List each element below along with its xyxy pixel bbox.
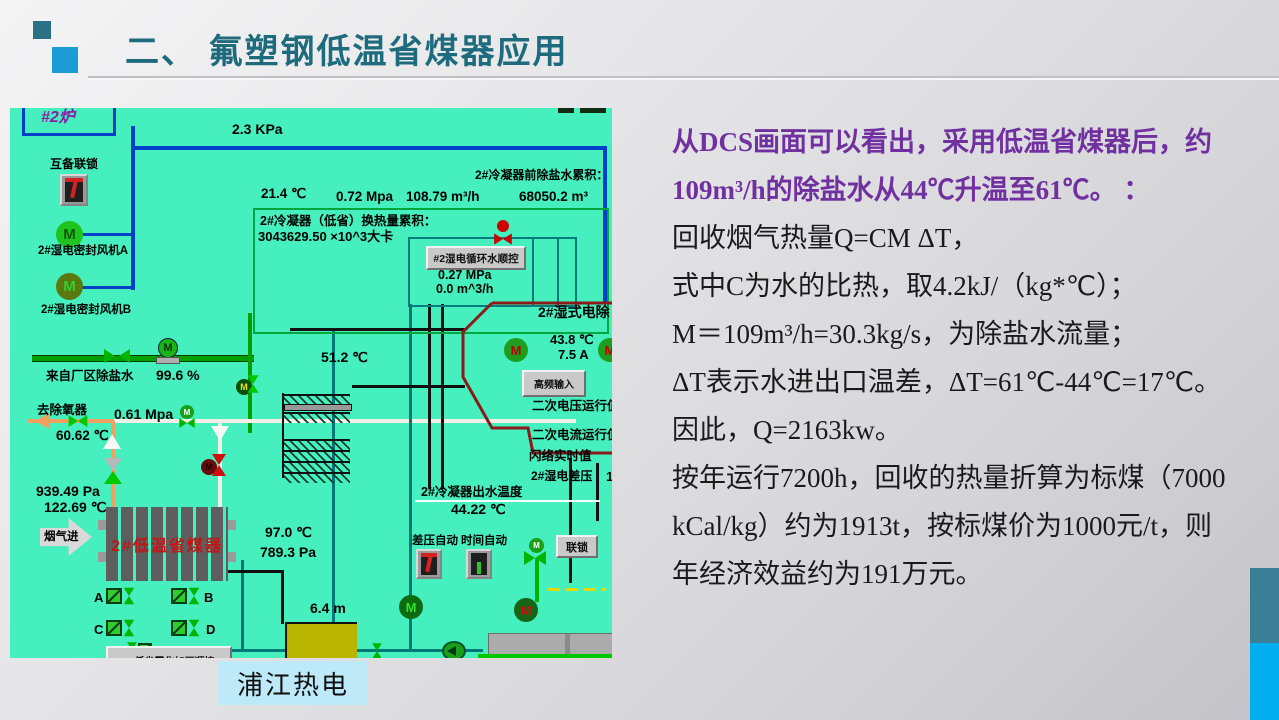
- accent-square-teal: [33, 21, 51, 39]
- hf-input-button: 高频输入: [522, 370, 586, 397]
- accum-heat-title: 2#冷凝器（低省）换热量累积：: [260, 215, 436, 229]
- sec-current-label: 二次电流运行值: [532, 429, 612, 443]
- tube-bank-row: [284, 412, 350, 423]
- body-line: kCal/kg）约为1913t，按标煤价为1000元/t，则: [672, 502, 1262, 550]
- economizer-tab: [228, 552, 236, 562]
- kpa-top-label: 2.3 KPa: [232, 122, 283, 137]
- valve-c-icon: [124, 620, 135, 637]
- dp-auto-label: 差压自动: [412, 535, 458, 548]
- body-line: 从DCS画面可以看出，采用低温省煤器后，约: [672, 118, 1262, 166]
- body-line: 回收烟气热量Q=CM ΔT，: [672, 214, 1262, 262]
- blue-pipe-vertical-left: [131, 126, 135, 290]
- header-divider: [88, 76, 1279, 80]
- bottom-motor-1-icon: M: [399, 595, 423, 619]
- teal-pipe-2: [409, 304, 412, 599]
- interlock-toggle-icon: [60, 174, 88, 206]
- dcs-screenshot: #2炉 2#低温省煤器 烟气进 M M: [10, 108, 612, 658]
- yellow-tank: [285, 622, 357, 658]
- deco-bar-blue: [1250, 643, 1279, 720]
- white-pipe-valve-icon: [179, 418, 194, 428]
- riser-valve-green-icon: [104, 471, 122, 484]
- fan-a-motor-icon: M: [56, 221, 83, 248]
- tube-bank-bar: [284, 404, 352, 411]
- white-pipe-motor-icon: M: [180, 405, 194, 419]
- caption-pujiang: 浦江热电: [218, 661, 368, 705]
- circulation-valve-icon: [494, 233, 512, 244]
- body-line: 按年运行7200h，回收的热量折算为标煤（7000: [672, 454, 1262, 502]
- percent-label: 99.6 %: [156, 368, 200, 383]
- black-line-h1: [226, 570, 284, 573]
- demin-inlet-valve-icon: [104, 349, 130, 365]
- dp-label: 2#湿电差压: [531, 470, 592, 483]
- esp-motor-1-icon: M: [504, 338, 528, 362]
- circulation-divider: [532, 239, 534, 305]
- valve-c-label: C: [94, 623, 103, 637]
- deco-bar-teal: [1250, 568, 1279, 643]
- flash-value-label: 闪络实时值: [529, 450, 592, 464]
- teal-stub-1: [241, 560, 244, 649]
- esp-title: 2#湿式电除: [538, 305, 610, 320]
- condenser-line-h2: [352, 385, 465, 388]
- circulation-seq-button: #2湿电循环水顺控: [426, 246, 526, 270]
- dp-digit: 1: [606, 470, 612, 484]
- valve-a-icon: [124, 588, 135, 605]
- temp-12269-label: 122.69 ℃: [44, 500, 106, 515]
- accum-heat-value: 3043629.50 ×10^3大卡: [258, 230, 393, 244]
- temp-512-label: 51.2 ℃: [321, 350, 368, 365]
- valve-d-icon: [189, 620, 200, 637]
- black-line-v1: [281, 570, 284, 624]
- valve-a-label: A: [94, 591, 103, 605]
- accent-square-blue: [52, 47, 78, 73]
- time-auto-toggle-icon: [466, 549, 492, 579]
- temp-970-label: 97.0 ℃: [265, 525, 312, 540]
- body-line: 109m³/h的除盐水从44℃升温至61℃。 ：: [672, 166, 1262, 214]
- page-title: 二、 氟塑钢低温省煤器应用: [125, 24, 568, 73]
- black-line-v3: [596, 463, 599, 521]
- riser-valve-gray-icon: [104, 458, 122, 471]
- body-text: 从DCS画面可以看出，采用低温省煤器后，约 109m³/h的除盐水从44℃升温至…: [672, 118, 1262, 598]
- circulation-divider: [557, 239, 559, 305]
- outlet-value: 44.22 ℃: [451, 502, 506, 517]
- sec-voltage-label: 二次电压运行值: [532, 400, 612, 414]
- mpa-inner-label: 0.27 MPa: [438, 269, 492, 283]
- economizer-block: 2#低温省煤器: [106, 507, 228, 581]
- bottom-seq-button: 2#低省雾化加压顺控: [106, 646, 232, 658]
- tube-bank-row: [284, 472, 350, 483]
- fan-b-motor-icon: M: [56, 273, 83, 300]
- economizer-tab: [98, 520, 106, 530]
- teal-stub-2: [409, 617, 412, 651]
- fan-a-label: 2#湿电密封风机A: [38, 245, 128, 258]
- clipped-text-fragment: [580, 108, 606, 113]
- outlet-label: 2#冷凝器出水温度: [421, 486, 522, 500]
- vol-top-label: 68050.2 m³: [519, 190, 588, 205]
- bottom-motor-2-icon: M: [514, 598, 538, 622]
- flue-gas-label: 烟气进: [44, 531, 79, 544]
- valve-c-square-icon: [106, 620, 122, 636]
- motor-valve-base: [156, 357, 180, 364]
- presentation-slide: 二、 氟塑钢低温省煤器应用: [0, 0, 1279, 720]
- economizer-tab: [98, 552, 106, 562]
- flow-top-label: 108.79 m³/h: [406, 190, 480, 205]
- demin-water-pipe: [32, 355, 254, 362]
- fan-a-connector: [82, 233, 132, 236]
- pa-7893-label: 789.3 Pa: [260, 545, 316, 560]
- amp-75-label: 7.5 A: [558, 348, 589, 362]
- level-64-label: 6.4 m: [310, 601, 346, 616]
- mpa-mid-label: 0.61 Mpa: [114, 407, 173, 422]
- valve-a-square-icon: [106, 588, 122, 604]
- flow-inner-label: 0.0 m^3/h: [436, 283, 493, 297]
- unit-tag: #2炉: [41, 109, 75, 127]
- valve-b-square-icon: [171, 588, 187, 604]
- from-plant-label: 来自厂区除盐水: [46, 370, 134, 384]
- valve-d-label: D: [206, 623, 215, 637]
- temp-438-label: 43.8 ℃: [550, 333, 594, 347]
- mpa-top-label: 0.72 Mpa: [336, 190, 393, 205]
- fan-b-connector: [82, 286, 132, 289]
- interlock-button: 联锁: [556, 535, 598, 558]
- circulation-valve-ball-icon: [497, 220, 509, 232]
- body-line: 式中C为水的比热，取4.2kJ/（kg*℃）；: [672, 262, 1262, 310]
- valve-b-label: B: [204, 591, 213, 605]
- body-line: M＝109m³/h=30.3kg/s，为除盐水流量；: [672, 310, 1262, 358]
- branch-valve-icon: [247, 375, 258, 393]
- unit-tag-box: #2炉: [22, 108, 116, 136]
- accum-pre-label: 2#冷凝器前除盐水累积：: [475, 169, 608, 182]
- body-line: ΔT表示水进出口温差，ΔT=61℃-44℃=17℃。: [672, 358, 1262, 406]
- green-pipe-vertical: [248, 313, 252, 433]
- temp-6062-label: 60.62 ℃: [56, 429, 109, 444]
- white-riser-down-arrow-icon: [211, 426, 229, 441]
- valve-d-square-icon: [171, 620, 187, 636]
- body-line: 年经济效益约为191万元。: [672, 550, 1262, 598]
- fan-b-label: 2#湿电密封风机B: [41, 304, 131, 317]
- blue-pipe-horizontal: [131, 146, 607, 150]
- dp-auto-toggle-icon: [416, 549, 442, 579]
- bottom-mid-valve-icon: [372, 643, 382, 658]
- time-auto-label: 时间自动: [461, 535, 507, 548]
- tube-bank-row: [284, 461, 350, 472]
- gray-duct: [488, 633, 612, 655]
- clipped-text-fragment: [558, 108, 574, 113]
- tube-bank-row: [284, 450, 350, 461]
- temp-top-label: 21.4 ℃: [261, 187, 306, 202]
- pump-icon: [442, 641, 466, 658]
- body-line: 因此，Q=2163kw。: [672, 406, 1262, 454]
- pipe-motor-valve-icon: M: [158, 338, 178, 358]
- pa-939-label: 939.49 Pa: [36, 484, 100, 499]
- yellow-dashes: [548, 588, 606, 591]
- economizer-tab: [228, 520, 236, 530]
- valve-b-icon: [189, 588, 200, 605]
- green-base-line: [478, 654, 612, 658]
- to-deaerator-label: 去除氧器: [37, 404, 87, 418]
- economizer-label: 2#低温省煤器: [111, 532, 223, 556]
- econ-red-valve-icon: [212, 454, 226, 476]
- interlock-a-label: 互备联锁: [50, 158, 98, 171]
- tube-bank-row: [284, 439, 350, 450]
- outlet-valve-icon: [524, 551, 546, 565]
- outlet-underline: [415, 500, 600, 502]
